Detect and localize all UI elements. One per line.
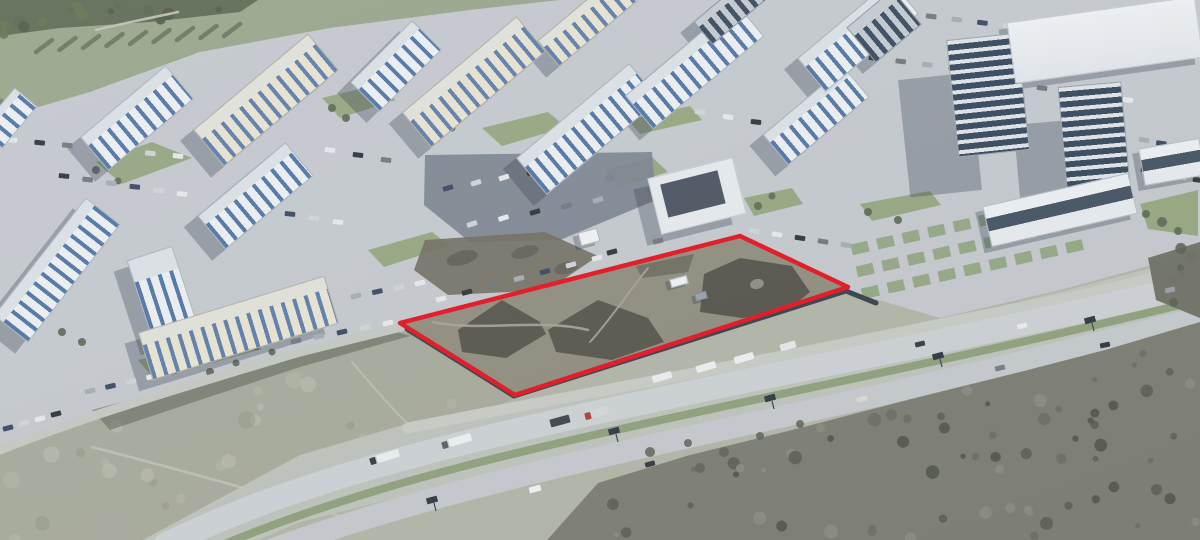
tree-clumps-top: [68, 7, 74, 13]
scrub-mottle: [3, 472, 20, 489]
forest-trees: [1166, 368, 1174, 376]
tree-clumps-top: [18, 21, 29, 32]
forest-trees: [1092, 377, 1097, 382]
forest-trees: [1030, 531, 1039, 540]
roadside-trees: [684, 439, 692, 447]
forest-trees: [939, 422, 950, 433]
tree-clumps-top: [143, 5, 154, 16]
scrub-mottle: [141, 469, 155, 483]
forest-trees: [989, 431, 996, 438]
scrub-mottle: [238, 411, 255, 428]
forest-trees: [939, 515, 947, 523]
city-trees: [1157, 217, 1167, 227]
forest-trees: [868, 413, 882, 427]
city-trees: [342, 114, 350, 122]
city-trees: [864, 208, 872, 216]
forest-trees: [1005, 503, 1015, 513]
forest-trees: [827, 435, 834, 442]
forest-trees: [937, 412, 945, 420]
forest-trees: [1185, 379, 1195, 389]
forest-trees: [788, 451, 801, 464]
forest-trees: [1040, 517, 1053, 530]
roadside-trees: [645, 447, 655, 457]
scrub-mottle: [43, 447, 59, 463]
tree-strip-right-trees: [1186, 252, 1197, 263]
tree-strip-right-trees: [1169, 298, 1178, 307]
city-trees: [1174, 227, 1182, 235]
forest-trees: [1093, 456, 1099, 462]
tree-strip-right-trees: [1175, 243, 1186, 254]
forest-trees: [687, 502, 693, 508]
forest-trees: [886, 409, 897, 420]
forest-trees: [1132, 362, 1137, 367]
forest-trees: [621, 527, 632, 538]
scrub-mottle: [76, 448, 85, 457]
forest-trees: [1055, 406, 1062, 413]
forest-trees: [1072, 435, 1078, 441]
scrub-mottle: [221, 454, 235, 468]
forest-trees: [1056, 453, 1066, 463]
forest-trees: [1092, 495, 1100, 503]
forest-trees: [1191, 518, 1199, 526]
forest-trees: [614, 532, 619, 537]
forest-trees: [1021, 448, 1032, 459]
forest-trees: [990, 452, 1000, 462]
city-trees: [894, 216, 902, 224]
forest-trees: [761, 467, 766, 472]
forest-trees: [1139, 350, 1146, 357]
scrub-mottle: [300, 377, 316, 393]
forest-trees: [1109, 482, 1120, 493]
forest-trees: [1108, 400, 1118, 410]
forest-trees: [1034, 394, 1047, 407]
forest-trees: [926, 465, 940, 479]
forest-trees: [1151, 484, 1162, 495]
forest-trees: [1140, 385, 1153, 398]
forest-trees: [1038, 413, 1051, 426]
tree-clumps-top: [38, 18, 47, 27]
forest-trees: [995, 465, 1004, 474]
city-trees: [769, 193, 776, 200]
scrub-mottle: [35, 516, 50, 531]
forest-trees: [824, 525, 838, 539]
forest-trees: [985, 401, 990, 406]
roadside-trees: [719, 447, 729, 457]
city-trees: [78, 338, 86, 346]
forest-trees: [869, 524, 876, 531]
city-trees: [754, 202, 762, 210]
tree-clumps-top: [115, 3, 121, 9]
scrub-mottle: [257, 403, 264, 410]
forest-trees: [903, 414, 911, 422]
roadside-trees: [756, 432, 764, 440]
scrub-mottle: [285, 372, 302, 389]
city-trees: [328, 104, 336, 112]
roadside-trees: [796, 420, 804, 428]
forest-trees: [1164, 493, 1175, 504]
forest-trees: [962, 386, 972, 396]
tree-strip-right-trees: [1171, 277, 1178, 284]
forest-trees: [897, 436, 909, 448]
scrub-mottle: [446, 399, 456, 409]
scrub-mottle: [176, 494, 186, 504]
aerial-photo: [0, 0, 1200, 540]
forest-trees: [1170, 433, 1177, 440]
roadside-trees: [695, 463, 705, 473]
scrub-mottle: [346, 421, 355, 430]
scrub-mottle: [162, 502, 170, 510]
forest-trees: [1064, 501, 1072, 509]
forest-trees: [960, 454, 965, 459]
city-trees: [1142, 210, 1150, 218]
forest-trees: [1148, 458, 1154, 464]
forest-trees: [736, 464, 745, 473]
forest-trees: [733, 471, 739, 477]
forest-trees: [1090, 409, 1099, 418]
forest-trees: [776, 521, 787, 532]
city-trees: [58, 328, 66, 336]
forest-trees: [1026, 509, 1033, 516]
tree-strip-right-trees: [1178, 270, 1186, 278]
tree-clumps-top: [215, 6, 222, 13]
scrub-mottle: [102, 463, 117, 478]
tree-clumps-top: [108, 8, 115, 15]
forest-trees: [1094, 439, 1107, 452]
forest-trees: [753, 511, 766, 524]
scrub-mottle: [253, 386, 262, 395]
forest-trees: [1135, 523, 1140, 528]
forest-trees: [816, 424, 825, 433]
forest-trees: [979, 506, 992, 519]
forest-trees: [972, 453, 979, 460]
forest-trees: [607, 498, 619, 510]
forest-trees: [1088, 417, 1094, 423]
